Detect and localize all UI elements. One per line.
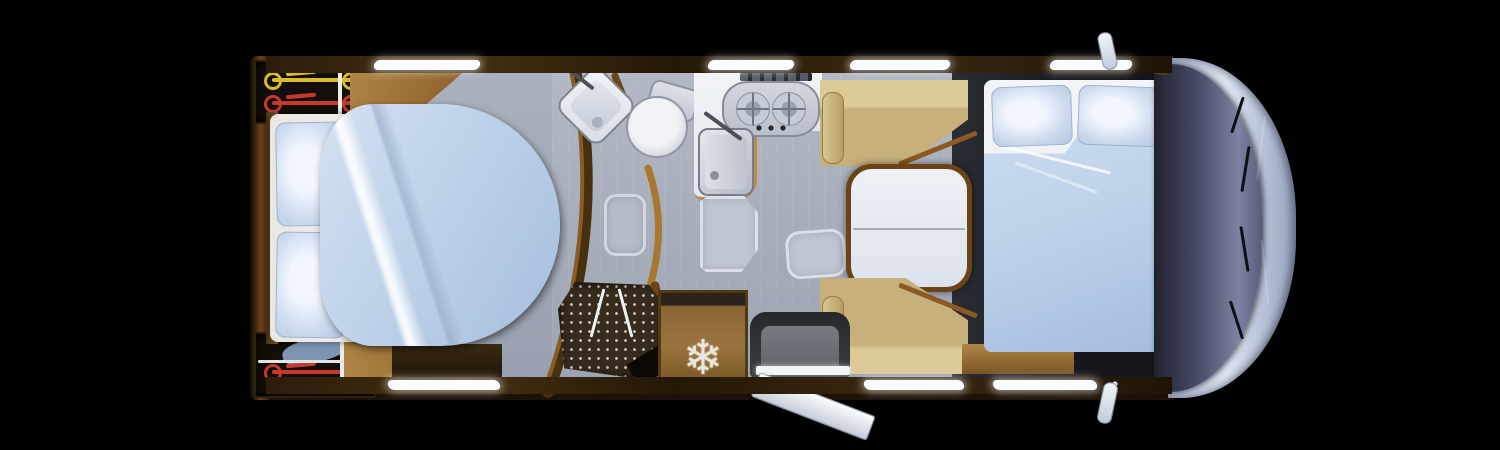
window-top-1 (373, 60, 481, 70)
hob-burner-right (772, 92, 806, 126)
front-bed-pillow-left (991, 85, 1073, 148)
hob-knobs (754, 125, 788, 131)
window-bottom-3 (992, 380, 1098, 390)
window-top-4 (1049, 60, 1133, 70)
wardrobe-cabinet (392, 344, 502, 380)
floor-mat-dinette (784, 228, 847, 280)
hob-vent-grill (740, 73, 812, 81)
bike-handlebar (286, 93, 316, 100)
window-top-3 (849, 60, 951, 70)
table-leaf-seam (853, 228, 965, 230)
dinette-table (846, 164, 972, 292)
sink-basin (705, 135, 747, 189)
toilet-bowl (626, 96, 688, 158)
kitchen-sink (698, 128, 754, 196)
bench-armrest-top (822, 92, 844, 164)
refrigerator: ❄ (658, 290, 748, 390)
window-bottom-1 (387, 380, 501, 390)
bath-mat (604, 194, 646, 256)
entry-step (756, 366, 850, 375)
hob-burner-left (736, 92, 770, 126)
front-bed-pillow-right (1077, 85, 1161, 148)
sink-drain (710, 171, 719, 180)
window-top-2 (707, 60, 795, 70)
motorhome-floorplan: ❄ (0, 0, 1500, 450)
floor-mat-corridor (700, 196, 758, 272)
bicycle-red (262, 93, 362, 112)
window-bottom-2 (863, 380, 965, 390)
